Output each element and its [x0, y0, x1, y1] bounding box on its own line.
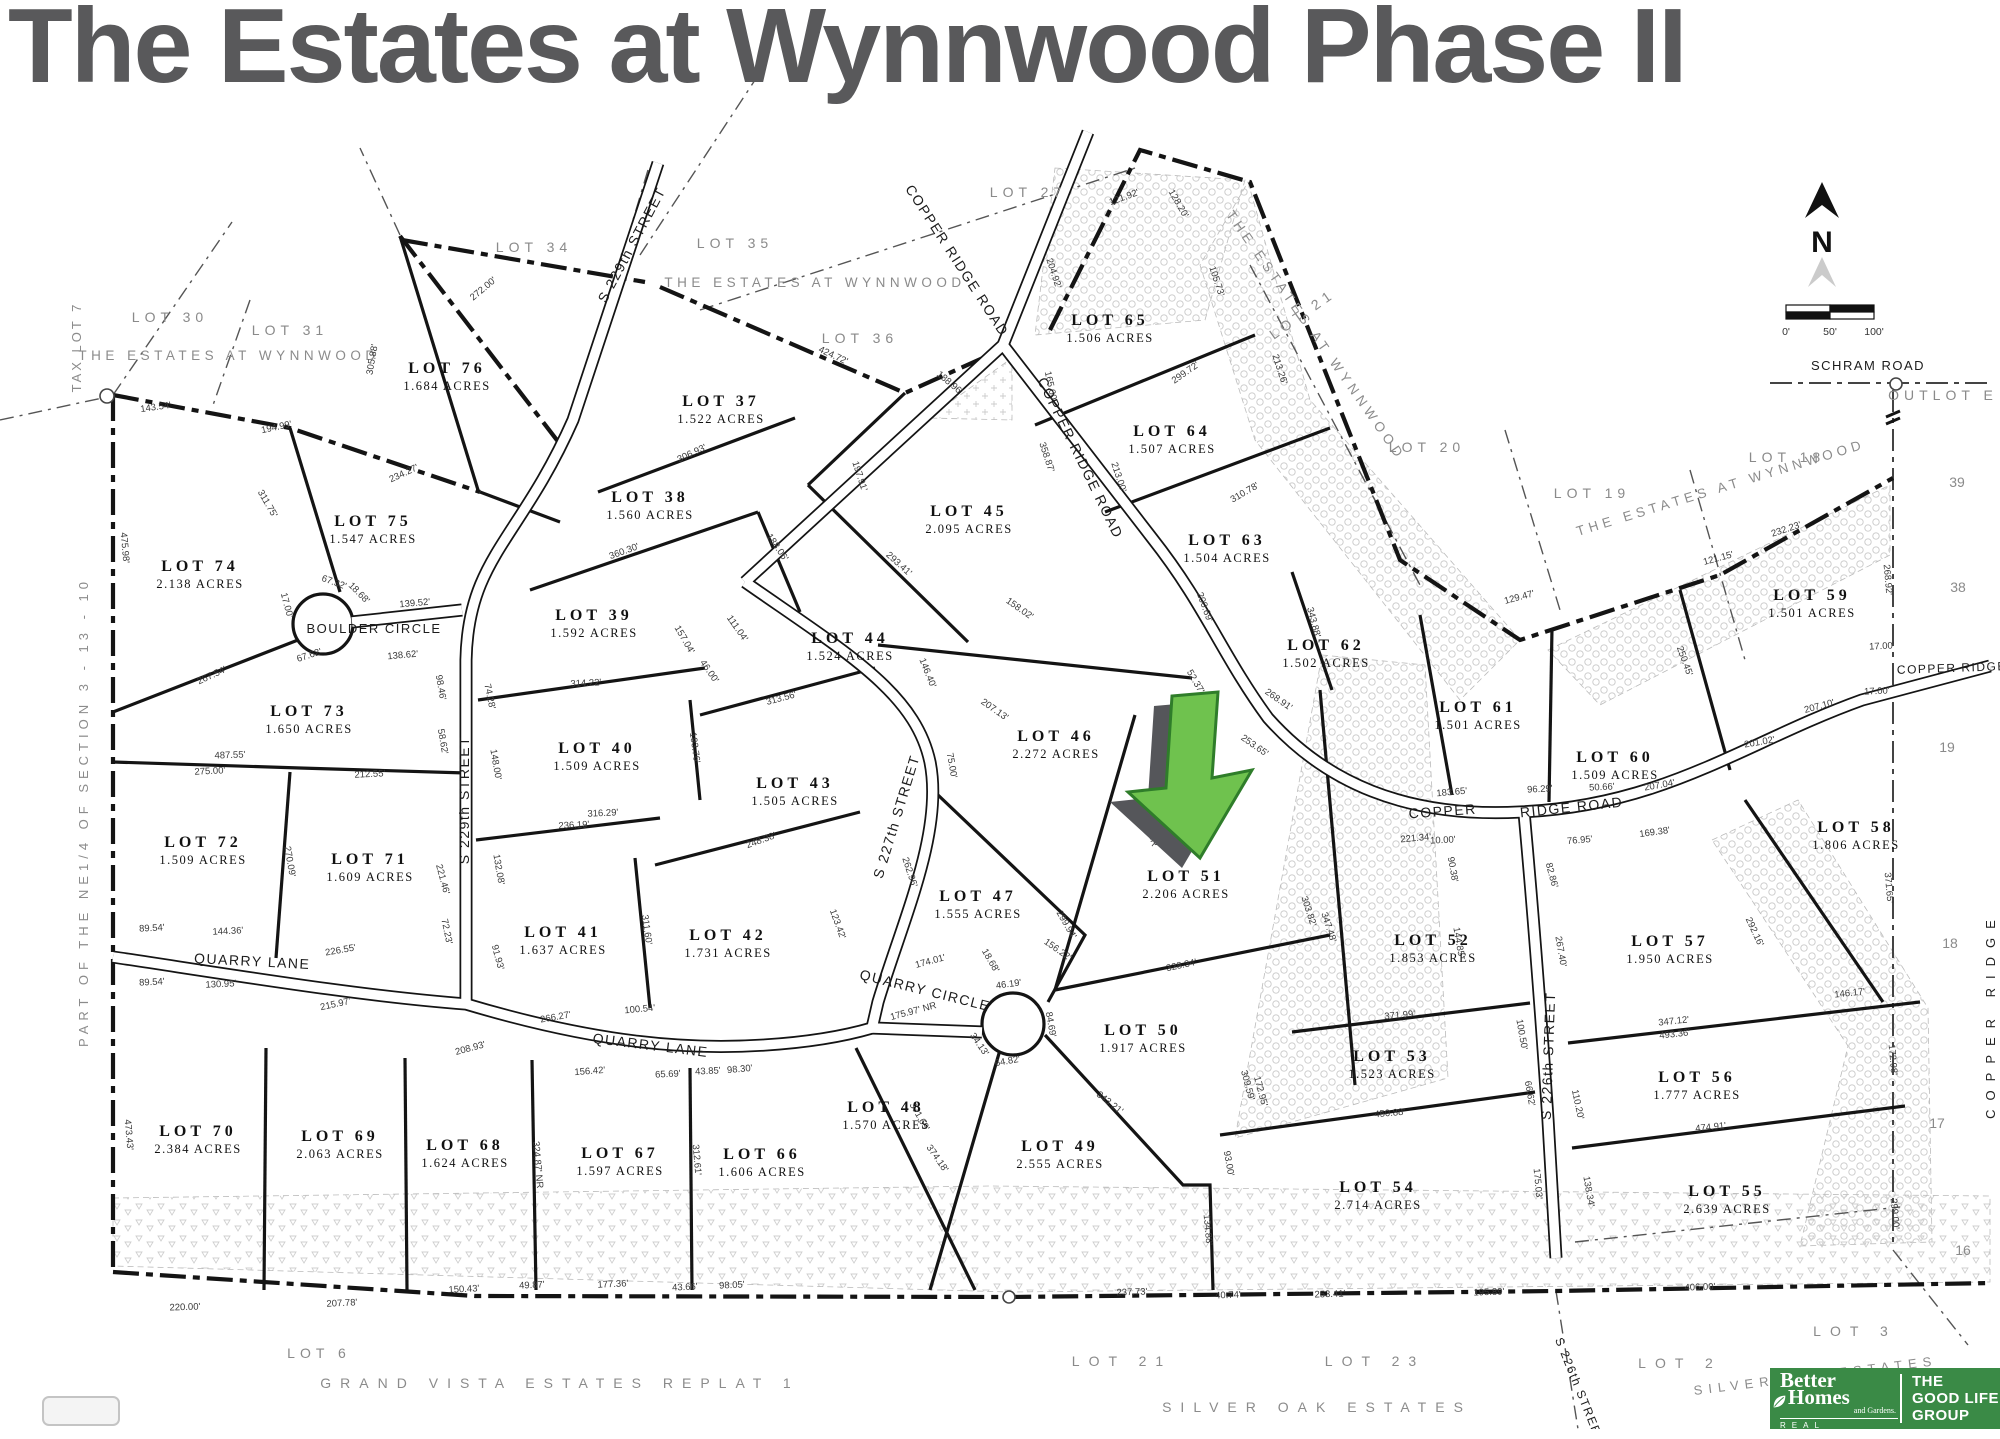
- street-label: S 229th STREET: [456, 736, 472, 864]
- lot-acres: 1.684 ACRES: [403, 379, 490, 393]
- dimension-label: 150.43': [448, 1283, 480, 1296]
- neighbor-lot-label: LOT 19: [1554, 485, 1630, 501]
- lot-acres: 2.095 ACRES: [925, 522, 1012, 536]
- neighbor-lot-label: 39: [1949, 474, 1965, 490]
- street-label: COPPER RIDGE: [1897, 659, 2000, 677]
- dimension-label: 343.88': [1304, 606, 1323, 639]
- dimension-label: 96.29': [1527, 783, 1553, 795]
- dimension-label: 193.76': [687, 732, 702, 764]
- neighbor-lot-label: LOT 3: [1813, 1323, 1897, 1339]
- dimension-label: 475.98': [118, 532, 132, 564]
- dimension-label: 215.97': [319, 996, 352, 1013]
- lot-acres: 1.609 ACRES: [326, 870, 413, 884]
- neighbor-lot-label: 19: [1939, 739, 1955, 755]
- dimension-label: 158.02': [1004, 596, 1036, 623]
- lot-acres: 1.522 ACRES: [677, 412, 764, 426]
- brokerage-logo: Better Homes and Gardens. REAL ESTATE TH…: [1770, 1368, 2000, 1429]
- dimension-label: 177.36': [597, 1278, 629, 1291]
- lot-acres: 2.639 ACRES: [1683, 1202, 1770, 1216]
- lot-acres: 1.560 ACRES: [606, 508, 693, 522]
- dimension-label: 100.50': [1513, 1018, 1529, 1050]
- lot-number: LOT 53: [1353, 1048, 1431, 1065]
- logo-name: Better Homes: [1780, 1372, 1898, 1406]
- lot-number: LOT 65: [1071, 312, 1149, 329]
- lot-number: LOT 48: [847, 1099, 925, 1116]
- page-title: The Estates at Wynnwood Phase II: [8, 0, 1998, 107]
- lot-acres: 1.592 ACRES: [550, 626, 637, 640]
- lot-number: LOT 64: [1133, 423, 1211, 440]
- lot-number: LOT 56: [1658, 1069, 1736, 1086]
- dimension-label: 248.38': [745, 830, 778, 851]
- logo-tagline-line3: GROUP: [1912, 1408, 2000, 1425]
- dimension-label: 175.97' NR: [889, 1000, 938, 1023]
- lot-acres: 1.524 ACRES: [806, 649, 893, 663]
- lot-number: LOT 73: [270, 703, 348, 720]
- dimension-label: 98.05': [719, 1279, 745, 1291]
- corner-marker: [42, 1396, 120, 1426]
- dimension-label: 237.73': [1116, 1286, 1147, 1298]
- dimension-label: 314.22': [570, 677, 602, 690]
- lot-number: LOT 44: [811, 630, 889, 647]
- dimension-label: 130.95': [205, 978, 237, 991]
- street-label: S 226th STREET: [1552, 1335, 1607, 1429]
- dimension-label: 183.65': [1436, 786, 1468, 800]
- street-label: BOULDER CIRCLE: [306, 621, 441, 636]
- dimension-label: 46.00': [697, 658, 721, 685]
- dimension-label: 143.54': [140, 400, 172, 415]
- lot-number: LOT 45: [930, 503, 1008, 520]
- lot-number: LOT 51: [1147, 868, 1225, 885]
- street-label: S 229th STREET: [594, 184, 668, 305]
- dimension-label: 46.19': [995, 977, 1022, 991]
- dimension-label: 324.87' NR: [530, 1141, 545, 1189]
- neighbor-lot-label: LOT 20: [1389, 439, 1465, 455]
- dimension-label: 146.40': [916, 657, 938, 690]
- dimension-label: 169.38': [1639, 825, 1671, 840]
- lot-labels: LOT 371.522 ACRESLOT 381.560 ACRESLOT 39…: [154, 312, 1899, 1216]
- scale-tick-labels: 0'50'100': [1782, 326, 1884, 338]
- dimension-label: 111.04': [724, 613, 750, 644]
- dimension-label: 58.62': [435, 728, 450, 755]
- dimension-label: 275.00': [194, 765, 226, 778]
- lot-acres: 1.523 ACRES: [1348, 1067, 1435, 1081]
- annotation-label: COPPER RIDGE: [1983, 911, 1998, 1119]
- lot-number: LOT 60: [1576, 749, 1654, 766]
- lot-acres: 1.509 ACRES: [553, 759, 640, 773]
- lot-number: LOT 61: [1439, 699, 1517, 716]
- dimension-label: 10.00': [1430, 834, 1456, 846]
- dimension-label: 156.42': [574, 1065, 606, 1078]
- dimension-label: 138.62': [387, 649, 419, 663]
- lot-number: LOT 46: [1017, 728, 1095, 745]
- dimension-label: 100.54': [624, 1003, 656, 1017]
- lot-number: LOT 63: [1188, 532, 1266, 549]
- lot-acres: 1.501 ACRES: [1768, 606, 1855, 620]
- dimension-label: 310.78': [1229, 480, 1261, 505]
- lot-acres: 1.597 ACRES: [576, 1164, 663, 1178]
- dimension-label: 268.92': [1881, 564, 1895, 596]
- annotation-label: SILVER OAK ESTATES: [1162, 1399, 1472, 1415]
- scale-tick: 50': [1823, 326, 1837, 338]
- dimension-label: 311.75': [255, 488, 280, 520]
- dimension-label: 306.93': [676, 442, 709, 465]
- dimension-label: 98.30': [727, 1063, 754, 1076]
- dimension-label: 66.62': [1522, 1080, 1537, 1107]
- lot-number: LOT 42: [689, 927, 767, 944]
- dimension-label: 253.41': [1314, 1288, 1345, 1300]
- dimension-label: 67.62': [295, 646, 323, 664]
- dimension-label: 43.85': [695, 1065, 721, 1077]
- lot-acres: 2.272 ACRES: [1012, 747, 1099, 761]
- dimension-label: 207.13': [979, 697, 1011, 724]
- dimension-label: 132.08': [490, 853, 506, 885]
- dimension-label: 91.93': [489, 944, 506, 972]
- dimension-label: 311.60': [639, 914, 654, 946]
- lot-acres: 1.501 ACRES: [1434, 718, 1521, 732]
- dimension-label: 52.37': [1184, 668, 1206, 696]
- quarry-circle-bulb: [982, 993, 1044, 1055]
- lot-number: LOT 41: [524, 924, 602, 941]
- north-label: N: [1811, 226, 1833, 259]
- annotation-label: PART OF THE NE1/4 OF SECTION 3 - 13 - 10: [76, 577, 91, 1047]
- lot-acres: 1.650 ACRES: [265, 722, 352, 736]
- street-label: COPPER RIDGE ROAD: [902, 182, 1012, 339]
- lot-number: LOT 59: [1773, 587, 1851, 604]
- dimension-label: 226.55': [324, 942, 356, 958]
- dimension-label: 343.21': [1094, 1089, 1125, 1117]
- street-label: COPPER: [1408, 801, 1477, 822]
- logo-tagline-line2: GOOD LIFE: [1912, 1391, 2000, 1408]
- dimension-label: 43.66': [672, 1281, 698, 1293]
- dimension-label: 82.86': [1543, 862, 1560, 890]
- neighbor-lot-label: LOT 34: [496, 239, 572, 255]
- lot-acres: 1.506 ACRES: [1066, 331, 1153, 345]
- lot-acres: 1.606 ACRES: [718, 1165, 805, 1179]
- lot-acres: 2.714 ACRES: [1334, 1198, 1421, 1212]
- dimension-label: 272.00': [468, 275, 499, 303]
- dimension-label: 123.42': [827, 908, 848, 941]
- dimension-label: 406.00': [1684, 1281, 1715, 1293]
- lot-acres: 1.637 ACRES: [519, 943, 606, 957]
- scale-bar: 0'50'100': [1782, 305, 1884, 338]
- scale-tick: 100': [1864, 326, 1884, 338]
- lot-acres: 2.063 ACRES: [296, 1147, 383, 1161]
- lot-number: LOT 39: [555, 607, 633, 624]
- lot-number: LOT 54: [1339, 1179, 1417, 1196]
- street-label: RIDGE ROAD: [1519, 794, 1624, 821]
- neighbor-lot-label: OUTLOT E: [1888, 387, 1998, 403]
- dimension-label: 17.00': [1864, 685, 1890, 697]
- dimension-label: 110.20': [1569, 1089, 1586, 1121]
- dimension-label: 74.28': [481, 683, 497, 710]
- dimension-label: 93.00': [1221, 1150, 1236, 1177]
- dimension-label: 267.54': [196, 664, 229, 687]
- lot-acres: 1.806 ACRES: [1812, 838, 1899, 852]
- dimension-label: 253.65': [1239, 733, 1271, 760]
- lot-number: LOT 72: [164, 834, 242, 851]
- lot-number: LOT 67: [581, 1145, 659, 1162]
- lot-acres: 1.777 ACRES: [1653, 1088, 1740, 1102]
- dimension-label: 17.00': [1869, 640, 1895, 652]
- scale-tick: 0': [1782, 326, 1790, 338]
- dimension-label: 450.88': [1374, 1107, 1406, 1121]
- street-label: S 227th STREET: [870, 753, 923, 880]
- dimension-label: 292.16': [1743, 916, 1766, 949]
- logo-name-line2: Homes: [1780, 1389, 1898, 1406]
- dimension-label: 89.54': [139, 976, 165, 988]
- dimension-label: 207.78': [326, 1297, 358, 1310]
- lot-acres: 1.509 ACRES: [1571, 768, 1658, 782]
- lot-acres: 1.731 ACRES: [684, 946, 771, 960]
- lot-acres: 2.138 ACRES: [156, 577, 243, 591]
- annotation-label: TAX LOT 7: [69, 302, 84, 393]
- neighbor-lot-label: LOT 18: [1749, 449, 1825, 465]
- dimension-label: 220.00': [169, 1301, 200, 1313]
- lot-number: LOT 47: [939, 888, 1017, 905]
- lot-number: LOT 76: [408, 360, 486, 377]
- neighbor-lot-label: 38: [1950, 579, 1966, 595]
- dimension-label: 50.66': [1589, 781, 1615, 793]
- lot-number: LOT 43: [756, 775, 834, 792]
- lot-number: LOT 52: [1394, 932, 1472, 949]
- neighbor-lot-label: LOT 36: [822, 330, 898, 346]
- neighbor-lot-label: 18: [1942, 935, 1958, 951]
- neighbor-lot-label: LOT 6: [287, 1345, 351, 1361]
- lot-number: LOT 49: [1021, 1138, 1099, 1155]
- dimension-label: 148.00': [487, 748, 503, 780]
- dimension-label: 98.46': [433, 674, 448, 701]
- street-label: QUARRY LANE: [592, 1030, 709, 1060]
- lot-acres: 1.555 ACRES: [934, 907, 1021, 921]
- logo-divider: [1900, 1374, 1902, 1423]
- street-label: S 226th STREET: [1538, 991, 1558, 1120]
- lot-acres: 1.504 ACRES: [1183, 551, 1270, 565]
- dimension-label: 195.89': [1473, 1286, 1504, 1298]
- dimension-label: 487.55': [214, 749, 245, 761]
- dimension-label: 374.18': [924, 1143, 951, 1175]
- lot-number: LOT 71: [331, 851, 409, 868]
- lot-acres: 1.570 ACRES: [842, 1118, 929, 1132]
- dimension-label: 89.54': [139, 922, 165, 934]
- dimension-label: 267.40': [1552, 935, 1568, 967]
- lot-number: LOT 70: [159, 1123, 237, 1140]
- street-label: SCHRAM ROAD: [1811, 358, 1925, 373]
- lot-number: LOT 57: [1631, 933, 1709, 950]
- dimension-label: 72.23': [438, 918, 454, 945]
- lot-number: LOT 38: [611, 489, 689, 506]
- annotation-label: THE ESTATES AT WYNNWOOD: [78, 348, 379, 363]
- dimension-label: 84.69': [1043, 1011, 1058, 1038]
- lot-acres: 1.917 ACRES: [1099, 1041, 1186, 1055]
- lot-number: LOT 66: [723, 1146, 801, 1163]
- lot-acres: 1.950 ACRES: [1626, 952, 1713, 966]
- plat-map: N 0'50'100' THE ESTATES AT WYNNWOODTHE E…: [0, 0, 2000, 1429]
- lot-acres: 1.547 ACRES: [329, 532, 416, 546]
- neighbor-lot-label: LOT 31: [252, 322, 328, 338]
- dimension-label: 17.00': [278, 592, 295, 620]
- dimension-label: 129.47': [1503, 588, 1536, 607]
- dimension-label: 358.87': [1036, 441, 1056, 474]
- lot-number: LOT 50: [1104, 1022, 1182, 1039]
- lot-number: LOT 62: [1287, 637, 1365, 654]
- dimension-label: 212.55': [354, 768, 386, 781]
- dimension-label: 313.56': [765, 689, 798, 708]
- dimension-label: 18.68': [346, 580, 372, 606]
- dimension-label: 40.74': [1215, 1290, 1241, 1302]
- lot-acres: 1.509 ACRES: [159, 853, 246, 867]
- logo-tagline: THE GOOD LIFE GROUP: [1906, 1368, 2000, 1429]
- north-arrow: N: [1805, 182, 1839, 287]
- neighbor-lot-label: 17: [1929, 1115, 1945, 1131]
- neighbor-lot-label: LOT 21: [1072, 1353, 1172, 1369]
- annotation-label: GRAND VISTA ESTATES REPLAT 1: [320, 1375, 799, 1391]
- leaf-icon: [1772, 1394, 1787, 1409]
- neighbor-lot-label: LOT 30: [132, 309, 208, 325]
- lot-acres: 2.555 ACRES: [1016, 1157, 1103, 1171]
- lot-acres: 1.505 ACRES: [751, 794, 838, 808]
- dimension-label: 49.87': [519, 1279, 545, 1291]
- dimension-label: 208.93': [454, 1039, 487, 1058]
- lot-number: LOT 37: [682, 393, 760, 410]
- annotation-label: THE ESTATES AT WYNNWOOD: [664, 275, 965, 290]
- dimension-label: 144.36': [212, 925, 244, 938]
- lot-number: LOT 74: [161, 558, 239, 575]
- dimension-label: 493.36': [1659, 1027, 1691, 1041]
- dimension-label: 328.34': [1165, 957, 1198, 974]
- lot-number: LOT 55: [1688, 1183, 1766, 1200]
- dimension-label: 67.32': [320, 573, 348, 592]
- neighbor-lot-label: LOT 27: [990, 184, 1066, 200]
- dimension-label: 347.12': [1658, 1014, 1690, 1028]
- dimension-label: 174.01': [914, 952, 947, 971]
- dimension-label: 474.91': [1695, 1120, 1727, 1134]
- lot-acres: 2.206 ACRES: [1142, 887, 1229, 901]
- lot-number: LOT 40: [558, 740, 636, 757]
- dimension-label: 236.19': [558, 819, 590, 832]
- lot-number: LOT 75: [334, 513, 412, 530]
- logo-tagline-line1: THE: [1912, 1374, 2000, 1391]
- lot-acres: 2.384 ACRES: [154, 1142, 241, 1156]
- lot-acres: 1.507 ACRES: [1128, 442, 1215, 456]
- dimension-label: 18.68': [979, 947, 1001, 975]
- neighbor-lot-label: LOT 2: [1638, 1355, 1722, 1371]
- lot-number: LOT 68: [426, 1137, 504, 1154]
- dimension-label: 76.95': [1567, 834, 1594, 847]
- logo-left: Better Homes and Gardens. REAL ESTATE: [1770, 1368, 1898, 1429]
- dimension-label: 316.29': [587, 807, 619, 820]
- dimension-label: 75.00': [944, 752, 959, 779]
- neighbor-lot-label: LOT 23: [1325, 1353, 1425, 1369]
- lot-acres: 1.502 ACRES: [1282, 656, 1369, 670]
- dimension-label: 90.38': [1445, 856, 1460, 883]
- lot-number: LOT 69: [301, 1128, 379, 1145]
- neighbor-lot-label: LOT 35: [697, 235, 773, 251]
- dimension-label: 473.43': [122, 1119, 136, 1151]
- neighbor-lot-label: 16: [1955, 1242, 1971, 1258]
- lot-acres: 1.853 ACRES: [1389, 951, 1476, 965]
- dimension-label: 157.04': [672, 624, 697, 656]
- lot-number: LOT 58: [1817, 819, 1895, 836]
- lot51-locator-arrow: [1110, 692, 1252, 868]
- dimension-label: 221.46': [433, 863, 452, 896]
- dimension-label: 65.69': [655, 1068, 681, 1080]
- dimension-label: 371.65': [1882, 872, 1896, 904]
- lot-acres: 1.624 ACRES: [421, 1156, 508, 1170]
